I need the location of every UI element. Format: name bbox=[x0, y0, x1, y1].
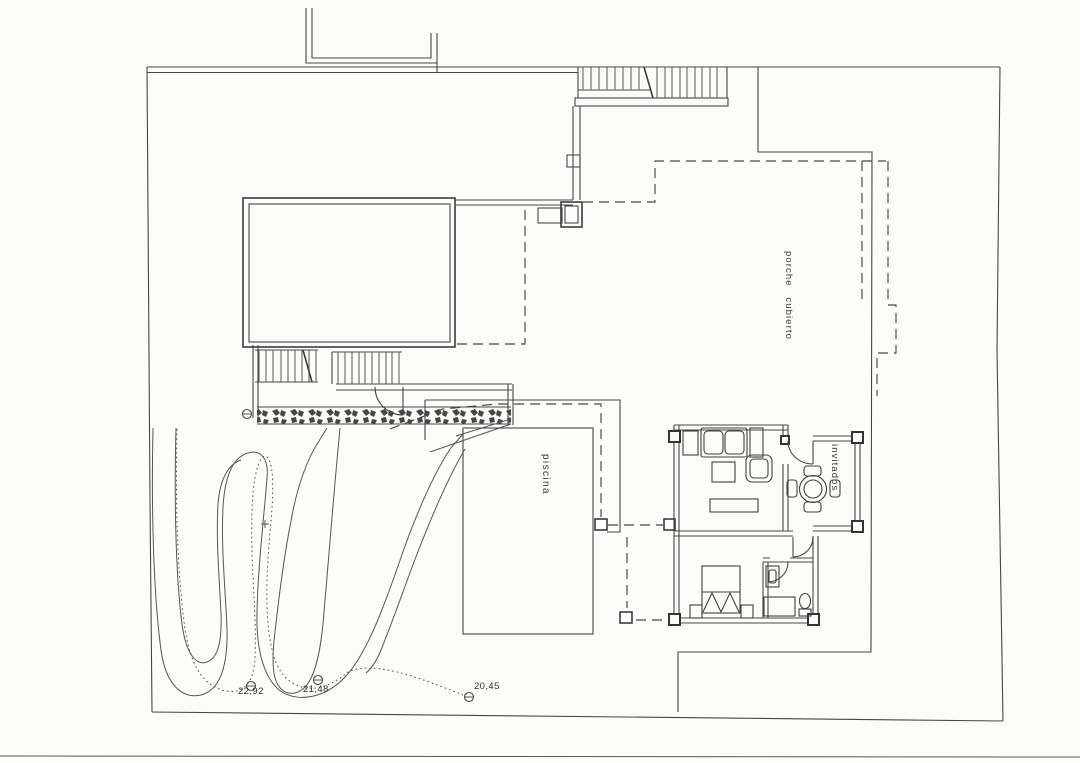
dashed-house-side bbox=[457, 207, 525, 344]
utility-box-c bbox=[620, 612, 632, 623]
stair-top-landing bbox=[575, 98, 728, 106]
roof-fixture-left bbox=[538, 208, 562, 223]
boundary-bottom-line bbox=[152, 712, 1003, 721]
dining-table-inner bbox=[804, 480, 822, 498]
site-plan-sheet: porche cubierto piscina invitados 22,92 … bbox=[0, 0, 1080, 763]
contour-dotted-path bbox=[176, 429, 463, 695]
sofa-cushion-right bbox=[725, 431, 744, 454]
wall-porch-top bbox=[813, 436, 852, 441]
roof-fixture-right-inner bbox=[565, 206, 578, 223]
door-bedroom-arc bbox=[793, 537, 813, 557]
wall-bottom bbox=[674, 618, 818, 623]
armchair-inner bbox=[750, 459, 768, 478]
exterior-stairs-top bbox=[575, 67, 728, 106]
neighbor-building bbox=[306, 8, 437, 72]
elevation-label-3: 20,45 bbox=[474, 681, 500, 692]
elevation-label-1: 22,92 bbox=[238, 686, 264, 697]
pillar-porch-top bbox=[852, 432, 863, 443]
neighbor-outer-outline bbox=[306, 8, 437, 63]
boundary-right-line bbox=[997, 67, 1003, 721]
scan-edge-line bbox=[0, 756, 1080, 757]
wall-right-lower bbox=[783, 464, 788, 531]
boundary-left-line bbox=[147, 67, 152, 712]
porch-boundary bbox=[678, 67, 872, 712]
door-living-arc bbox=[788, 441, 813, 464]
dashed-vertical-b bbox=[877, 161, 896, 396]
house-roof-inner bbox=[249, 204, 450, 342]
wall-porch-bottom bbox=[813, 526, 852, 531]
utility-box-b bbox=[664, 519, 675, 530]
pool-outline bbox=[463, 428, 593, 634]
house-terrace-edge bbox=[455, 200, 573, 205]
site-plan-drawing bbox=[0, 0, 1080, 763]
bedroom-furniture bbox=[690, 566, 753, 618]
pillar-top-left bbox=[669, 431, 680, 442]
rubble-band bbox=[257, 407, 511, 424]
stair-lower-landing bbox=[336, 384, 512, 390]
nightstand-right bbox=[741, 605, 753, 618]
stair-top-outline bbox=[578, 67, 727, 98]
dining-chair-north bbox=[804, 466, 821, 476]
wall-divider bbox=[674, 531, 793, 536]
dining-chair-south bbox=[804, 502, 821, 512]
living-room-furniture bbox=[683, 428, 772, 512]
toilet-bowl bbox=[800, 594, 811, 609]
contour-line-4 bbox=[366, 449, 465, 673]
garden-wall-upper bbox=[567, 106, 580, 200]
side-table-right bbox=[750, 428, 763, 457]
side-table-left bbox=[683, 431, 698, 455]
main-house bbox=[243, 198, 582, 347]
contour-line-3 bbox=[273, 428, 340, 693]
roof-overhang-dashed bbox=[457, 161, 896, 396]
sideboard bbox=[710, 499, 758, 512]
pillar-bottom-left bbox=[669, 614, 680, 625]
sofa-cushion-left bbox=[704, 431, 723, 454]
bed bbox=[702, 566, 740, 613]
bathroom-fixtures bbox=[764, 566, 811, 616]
bed-blanket-fan bbox=[703, 593, 739, 612]
neighbor-inner-outline bbox=[312, 8, 431, 58]
stair-direction-slash bbox=[644, 67, 653, 98]
terrain-contours bbox=[152, 428, 465, 697]
pillar-porch-bottom bbox=[852, 521, 863, 532]
stair-lower-direction-slash bbox=[303, 350, 312, 382]
label-guesthouse: invitados bbox=[829, 444, 840, 491]
shower-tray bbox=[764, 597, 795, 616]
elevation-label-2: 21,48 bbox=[303, 684, 329, 695]
stair-top-treads-left bbox=[583, 67, 639, 90]
nightstand-left bbox=[690, 605, 702, 618]
porch-platform-outline bbox=[678, 67, 872, 712]
label-pool: piscina bbox=[540, 454, 551, 495]
wall-bath-top bbox=[763, 558, 813, 562]
wall-bed-right bbox=[813, 536, 818, 623]
wall-porch-edge bbox=[855, 444, 860, 522]
contour-line-1 bbox=[152, 428, 463, 697]
label-porch: porche cubierto bbox=[783, 251, 794, 340]
stair-lower-flightB-treads bbox=[338, 352, 399, 384]
retaining-wall-rubble bbox=[243, 407, 512, 424]
sofa-frame bbox=[701, 428, 747, 457]
coffee-table bbox=[712, 462, 735, 482]
door-bath-arc bbox=[768, 562, 788, 582]
dashed-upper-path bbox=[583, 161, 886, 202]
pool bbox=[463, 428, 593, 634]
stair-top-treads-right bbox=[657, 67, 717, 98]
utility-box-a bbox=[595, 519, 607, 530]
pool-terrace bbox=[390, 400, 675, 623]
house-roof-outer bbox=[243, 198, 455, 347]
